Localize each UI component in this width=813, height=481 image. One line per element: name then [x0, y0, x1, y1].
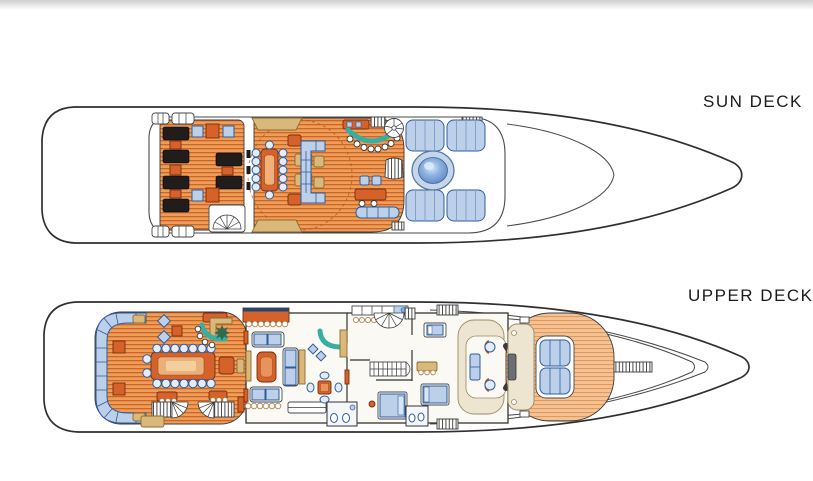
bowsprit-walkway [614, 362, 652, 372]
pilot-chair [485, 380, 495, 390]
side-table [113, 341, 125, 353]
ensuite-head [406, 406, 428, 426]
deck-gap-marks [247, 150, 251, 190]
side-boarding-gate [437, 305, 458, 315]
armchair [288, 135, 301, 146]
deck-plan-drawing [0, 0, 813, 481]
upper-berth-cabin [424, 323, 446, 337]
pilot-chair [485, 342, 495, 352]
spiral-staircase [385, 119, 404, 138]
funnel-mast [385, 158, 403, 179]
deck-chair [372, 176, 381, 185]
sun-pad-wedge-bottom [252, 220, 302, 232]
jacuzzi [412, 151, 454, 190]
coffee-table [257, 352, 276, 382]
armchair [288, 194, 301, 205]
mid-staircase [370, 362, 410, 376]
deck-chair [360, 176, 369, 185]
sofa [283, 348, 298, 386]
upper-deck-label: UPPER DECK [688, 286, 813, 306]
sofa [252, 332, 284, 347]
sun-deck-plan [42, 107, 742, 243]
host-armchair [219, 357, 234, 374]
sun-pad-wedge-top [252, 118, 302, 130]
guest-bed [421, 384, 449, 405]
upper-deck-plan [44, 302, 749, 432]
sun-deck-label: SUN DECK [703, 92, 803, 112]
deck-plan-page: SUN DECK UPPER DECK [0, 0, 813, 481]
side-boarding-gate [437, 419, 458, 429]
sun-deck-aft-stairs [209, 205, 245, 232]
palm-planter-icon [214, 325, 230, 341]
day-head [327, 402, 357, 426]
bench-seat [356, 207, 399, 218]
corridor-counter [417, 362, 437, 375]
boarding-ladder [392, 222, 404, 230]
dumbwaiter [371, 117, 385, 127]
corner-table [133, 315, 145, 323]
side-table [113, 383, 125, 395]
sofa [250, 387, 282, 402]
